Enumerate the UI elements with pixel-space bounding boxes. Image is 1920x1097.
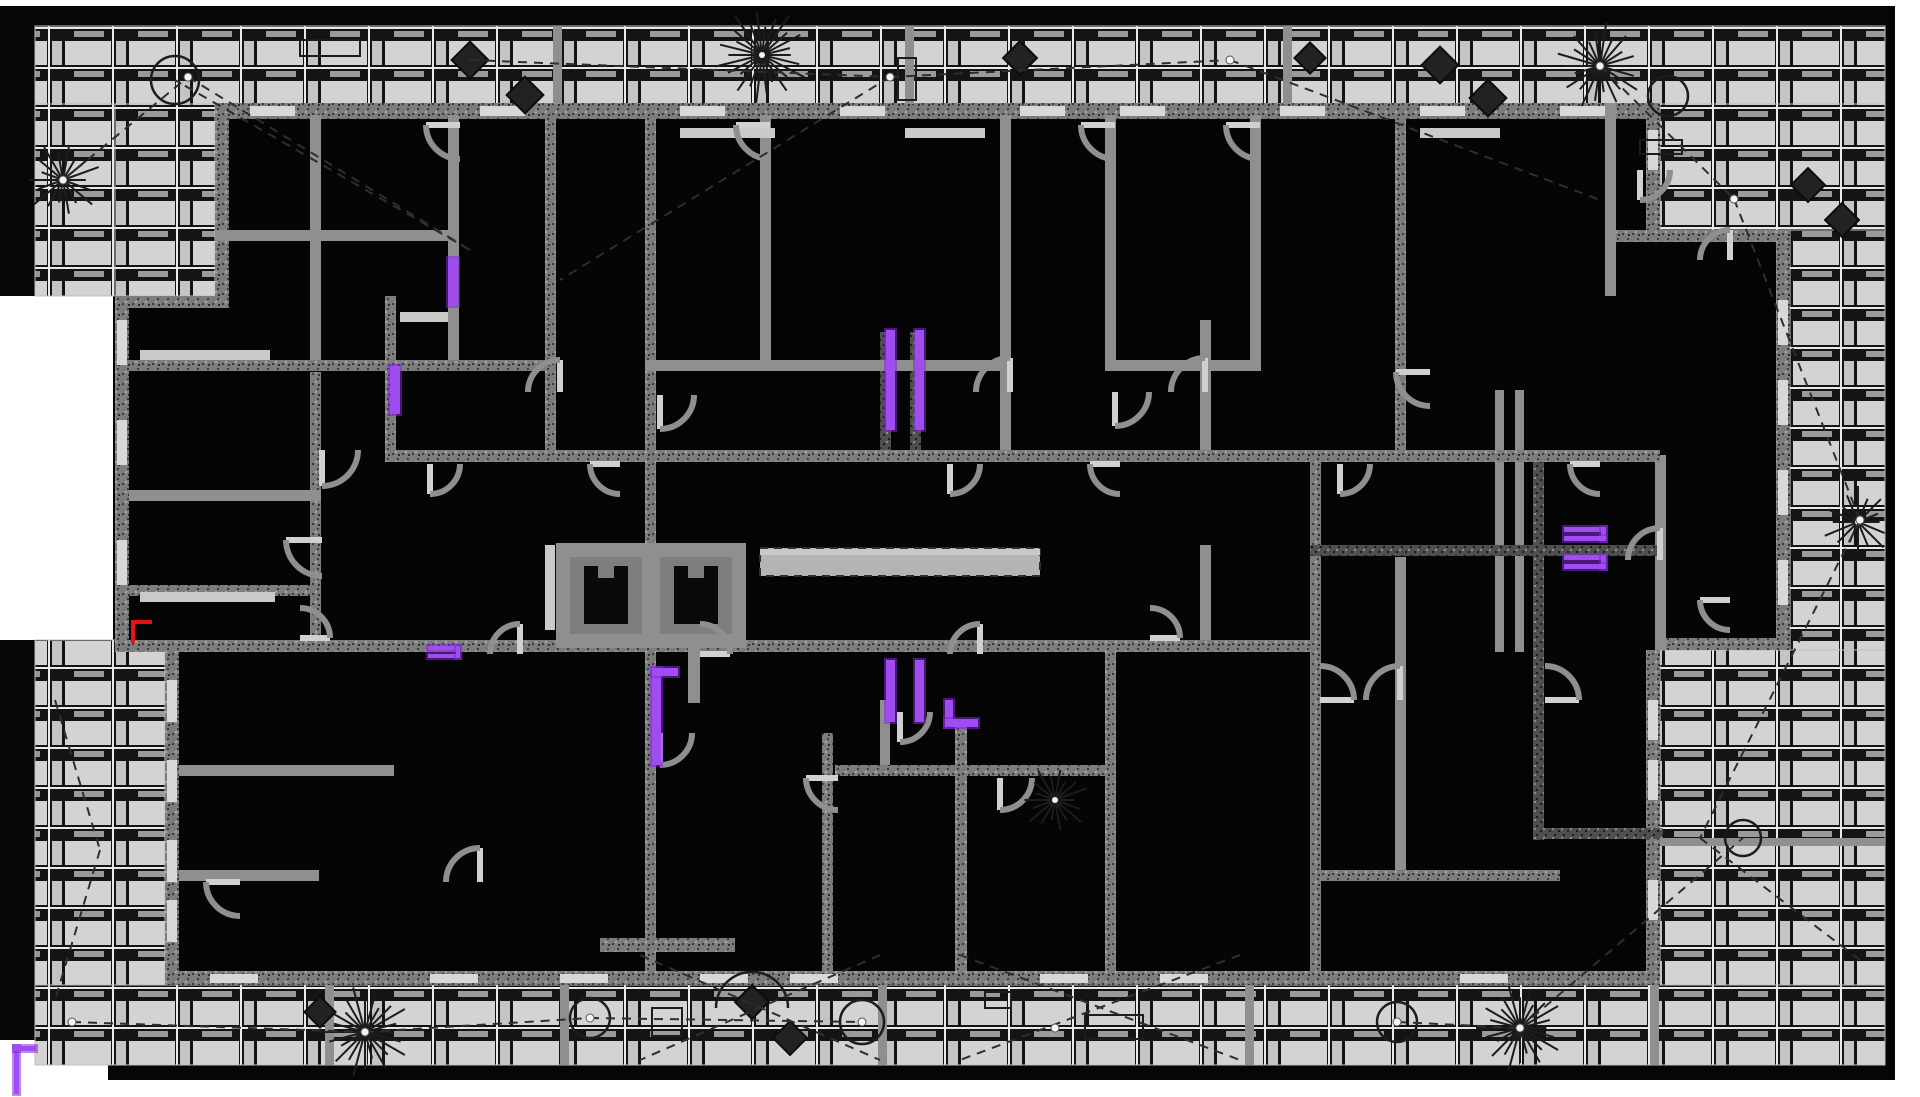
window-sliver [680,106,725,116]
door-leaf [1727,230,1733,260]
wall-segment [179,640,1321,652]
wall-segment [179,765,394,776]
wall-segment [1495,390,1504,652]
wall-segment [760,115,771,360]
purple-core [886,330,895,430]
door-leaf [426,122,460,128]
tree-center [759,52,765,58]
wall-segment [1000,115,1011,455]
wall-segment [129,360,549,371]
window-sliver [1160,974,1208,983]
door-leaf [736,122,770,128]
door-leaf [1226,122,1260,128]
window-sliver [117,420,127,465]
door-leaf [997,778,1003,810]
door-leaf [1545,697,1579,703]
purple-riser-mark [884,658,897,724]
door-leaf [1090,461,1120,467]
door-leaf [1337,464,1343,494]
door-leaf [590,461,620,467]
wall-segment [1395,115,1406,455]
fixture-node [858,1018,866,1026]
wall-segment [1533,455,1544,840]
purple-core [915,660,924,722]
terrace-band [1660,650,1885,985]
door-leaf [1396,369,1430,375]
window-sliver [1280,106,1325,116]
fixture-node [59,176,67,184]
wall-segment [545,115,556,455]
door-leaf [700,651,730,657]
elevator-car-notch [688,566,704,578]
window-sliver [250,106,295,116]
elevator-divider [644,543,658,648]
window-sliver [210,974,258,983]
terrace-band [115,104,215,296]
door-leaf [657,395,663,429]
door-leaf [517,624,523,654]
terrace-band [1790,230,1885,650]
wall-segment [645,360,1005,371]
purple-core [14,1046,19,1094]
door-leaf [557,360,563,392]
door-leaf [1397,666,1403,700]
door-leaf [1700,597,1730,603]
window-sliver [1560,106,1605,116]
balcony-divider [325,985,334,1065]
balcony-divider [1245,985,1254,1065]
wall-segment [1310,870,1560,881]
wall-segment [688,648,700,703]
terrace-band [35,640,165,985]
balcony-divider [1660,838,1885,846]
door-leaf [1150,635,1180,641]
balcony-divider [553,26,562,104]
fixture-node [68,1018,76,1026]
purple-riser-mark [913,328,926,432]
window-sliver [1778,560,1788,605]
purple-core [456,646,460,658]
wall-segment [115,296,229,308]
window-sliver [840,106,885,116]
door-leaf [286,537,322,543]
purple-core [945,719,978,727]
door-leaf [1637,170,1643,200]
purple-riser-mark [884,328,897,432]
purple-core [652,668,661,765]
wall-segment [1105,652,1116,985]
purple-core [915,330,924,430]
purple-riser-mark [426,644,462,660]
lintel [400,312,448,322]
wall-segment [215,103,229,308]
window-sliver [167,760,177,802]
wall-segment [385,450,1660,462]
terrace-band [35,985,1885,1065]
door-leaf [319,450,325,486]
fixture-node [1516,1024,1524,1032]
balcony-divider [560,985,569,1065]
window-sliver [167,680,177,722]
wall-segment [115,640,179,652]
wall-segment [1515,390,1524,652]
lintel [760,549,1040,555]
door-leaf [1202,358,1208,392]
lintel [905,128,985,138]
purple-core [886,660,895,722]
window-sliver [1648,760,1658,800]
door-leaf [947,464,953,494]
window-sliver [700,974,748,983]
fixture-node [1393,1018,1401,1026]
red-core [131,620,152,624]
lintel [545,545,555,630]
door-leaf [1657,528,1663,560]
door-leaf [1112,392,1118,426]
door-leaf [977,624,983,654]
wall-segment [1105,115,1116,360]
wall-segment [165,971,1660,985]
purple-core [14,1046,36,1051]
floor-plan-viewport [0,0,1920,1097]
purple-core [1564,564,1606,569]
fixture-node [1226,56,1234,64]
window-sliver [1648,700,1658,740]
fixture-node [1596,62,1604,70]
fixture-node [1051,1024,1059,1032]
door-leaf [1007,358,1013,392]
window-sliver [117,540,127,585]
door-leaf [897,712,903,742]
window-sliver [1040,974,1088,983]
wall-segment [1200,545,1211,652]
wall-segment [600,938,735,952]
window-sliver [1460,974,1508,983]
fixture-node [184,73,192,81]
wall-segment [215,230,455,241]
cutout [0,296,113,640]
fixture-node [361,1028,369,1036]
door-leaf [1320,697,1354,703]
wall-segment [1605,230,1790,242]
door-leaf [206,879,240,885]
lintel [680,128,775,138]
lintel [140,592,275,602]
door-leaf [1570,461,1600,467]
fixture-node [886,73,894,81]
purple-riser-mark [388,364,402,416]
balcony-divider [878,985,887,1065]
wall-segment [1250,115,1261,360]
purple-riser-mark [913,658,926,724]
window-sliver [430,974,478,983]
wall-segment [310,372,321,640]
wall-segment [1310,455,1321,985]
wall-segment [1605,103,1616,296]
door-leaf [806,775,838,781]
lintel [140,350,270,360]
window-sliver [167,840,177,882]
window-sliver [1778,470,1788,515]
window-sliver [560,974,608,983]
window-sliver [167,900,177,942]
purple-core [390,366,400,414]
wall-segment [129,490,321,501]
wall-segment [1533,828,1663,839]
tree-center [1052,797,1058,803]
window-sliver [1020,106,1065,116]
door-leaf [300,635,330,641]
balcony-divider [1283,26,1292,104]
door-leaf [427,464,433,494]
window-sliver [790,974,838,983]
window-sliver [1648,130,1658,170]
window-sliver [1778,380,1788,425]
purple-riser-mark [1562,553,1608,571]
window-sliver [1120,106,1165,116]
wall-segment [1655,638,1790,650]
window-sliver [117,320,127,365]
wall-segment [822,733,833,985]
wall-segment [1395,557,1406,870]
elevator-car-notch [598,566,614,578]
fixture-node [586,1014,594,1022]
door-leaf [477,848,483,882]
purple-core [448,258,458,306]
floor-plan-canvas [0,0,1920,1097]
window-sliver [1648,880,1658,920]
purple-core [1564,536,1606,541]
window-sliver [1420,106,1465,116]
wall-segment [835,765,1115,776]
balcony-divider [1650,985,1659,1065]
fixture-node [1856,516,1864,524]
door-leaf [1081,122,1115,128]
purple-riser-mark [446,256,460,308]
balcony-divider [905,26,914,104]
fixture-node [1730,195,1738,203]
wall-segment [179,870,319,881]
purple-core [652,668,678,676]
purple-riser-mark [1562,525,1608,543]
